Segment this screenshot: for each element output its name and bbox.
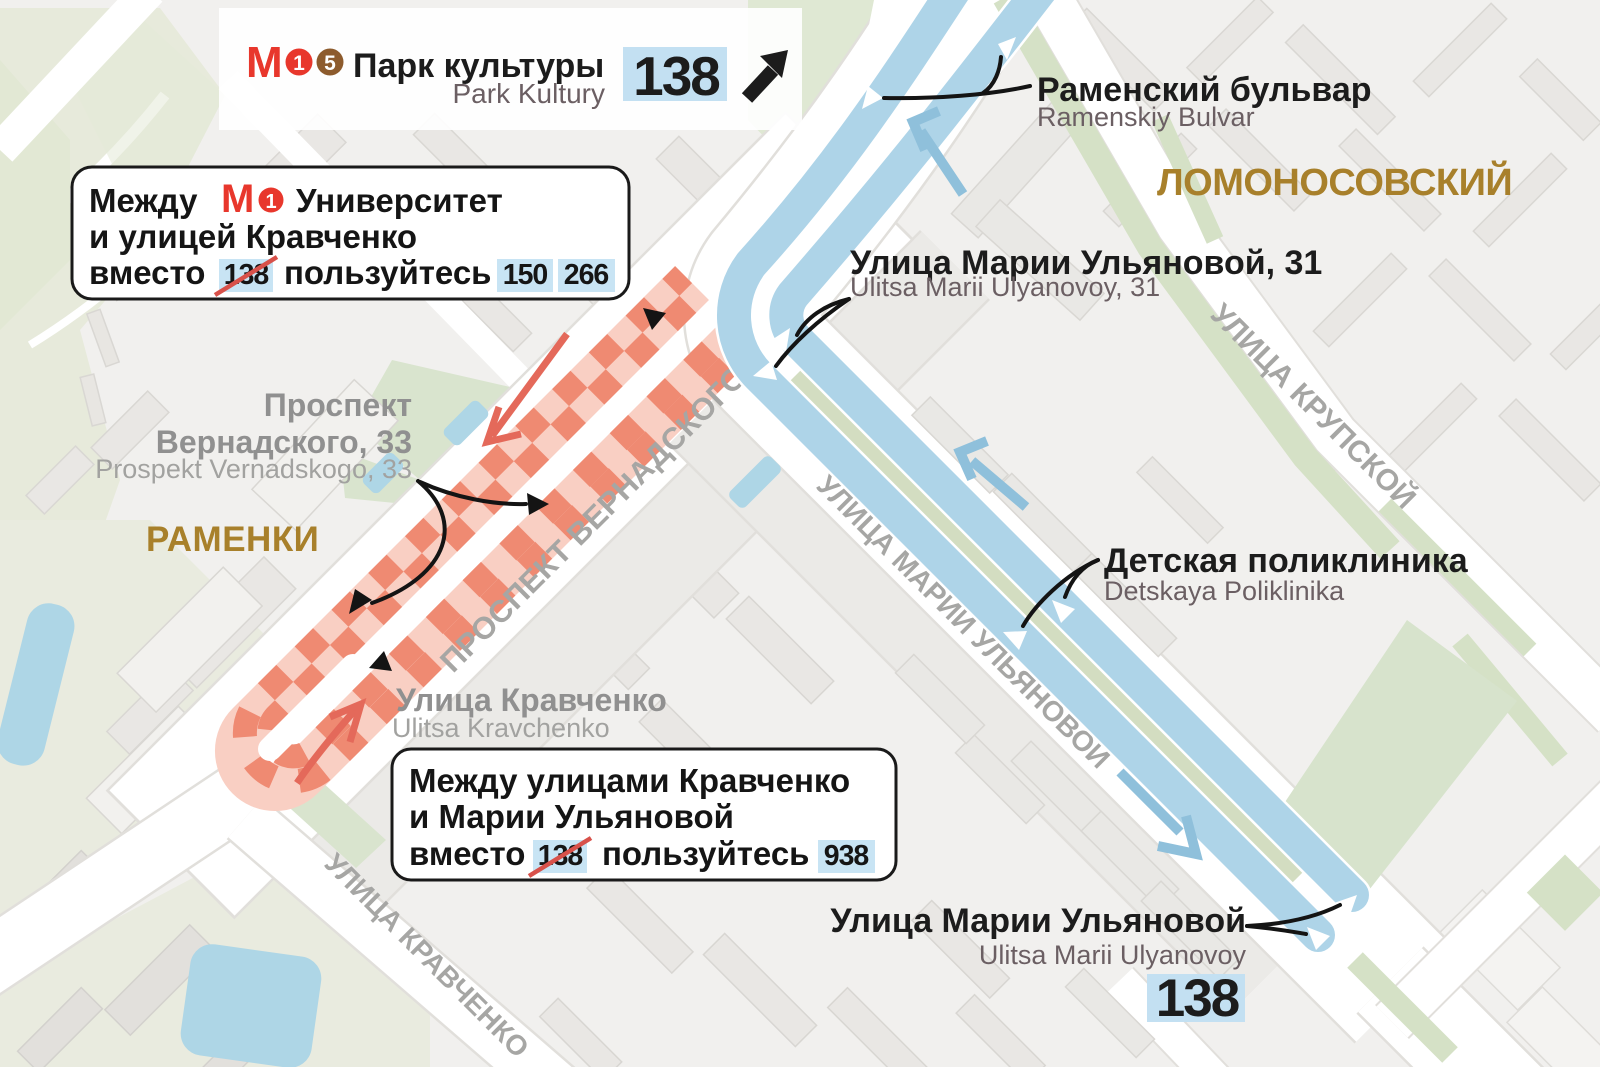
svg-text:Ulitsa Marii Ulyanovoy: Ulitsa Marii Ulyanovoy	[979, 940, 1247, 970]
svg-text:138: 138	[633, 45, 719, 107]
svg-text:Университет: Университет	[296, 182, 503, 219]
svg-text:266: 266	[564, 259, 609, 291]
svg-text:РАМЕНКИ: РАМЕНКИ	[146, 520, 319, 559]
svg-text:5: 5	[324, 52, 336, 75]
svg-text:Проспект: Проспект	[264, 387, 412, 423]
svg-text:и улицей Кравченко: и улицей Кравченко	[89, 218, 417, 255]
svg-text:Park Kultury: Park Kultury	[453, 78, 606, 109]
svg-text:вместо: вместо	[409, 835, 525, 872]
svg-text:Ramenskiy Bulvar: Ramenskiy Bulvar	[1037, 102, 1255, 132]
svg-text:Улица Марии Ульяновой: Улица Марии Ульяновой	[830, 902, 1246, 940]
svg-text:ЛОМОНОСОВСКИЙ: ЛОМОНОСОВСКИЙ	[1157, 159, 1512, 204]
svg-text:М: М	[221, 177, 254, 221]
svg-text:и Марии Ульяновой: и Марии Ульяновой	[409, 798, 734, 835]
svg-text:1: 1	[265, 191, 276, 213]
svg-text:Между улицами Кравченко: Между улицами Кравченко	[409, 762, 850, 799]
svg-text:М: М	[246, 38, 283, 87]
svg-text:150: 150	[503, 259, 548, 291]
svg-text:вместо: вместо	[89, 254, 205, 291]
svg-text:138: 138	[1156, 969, 1239, 1028]
svg-text:938: 938	[824, 840, 869, 872]
svg-text:Ulitsa Kravchenko: Ulitsa Kravchenko	[392, 713, 610, 743]
svg-text:Детская поликлиника: Детская поликлиника	[1104, 542, 1469, 580]
svg-text:Detskaya Poliklinika: Detskaya Poliklinika	[1104, 576, 1345, 606]
svg-text:пользуйтесь: пользуйтесь	[284, 254, 491, 291]
svg-text:Между: Между	[89, 182, 198, 219]
svg-text:пользуйтесь: пользуйтесь	[602, 835, 809, 872]
svg-text:1: 1	[293, 52, 305, 75]
svg-text:Prospekt Vernadskogo, 33: Prospekt Vernadskogo, 33	[95, 454, 412, 484]
svg-text:Ulitsa Marii Ulyanovoy, 31: Ulitsa Marii Ulyanovoy, 31	[850, 272, 1160, 302]
